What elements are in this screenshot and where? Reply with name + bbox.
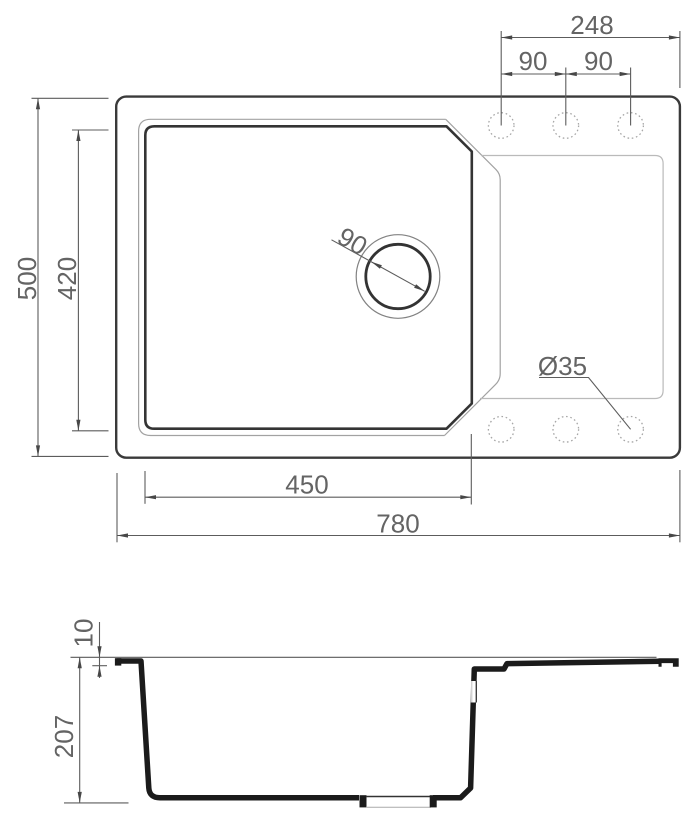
svg-text:10: 10	[69, 619, 99, 648]
svg-text:90: 90	[519, 46, 548, 76]
svg-text:500: 500	[12, 257, 42, 300]
svg-text:780: 780	[376, 509, 419, 539]
svg-text:450: 450	[285, 470, 328, 500]
svg-text:90: 90	[584, 46, 613, 76]
svg-text:207: 207	[49, 715, 79, 758]
svg-text:90: 90	[332, 221, 372, 261]
svg-text:248: 248	[570, 10, 613, 40]
svg-text:420: 420	[52, 257, 82, 300]
svg-text:Ø35: Ø35	[538, 351, 587, 381]
